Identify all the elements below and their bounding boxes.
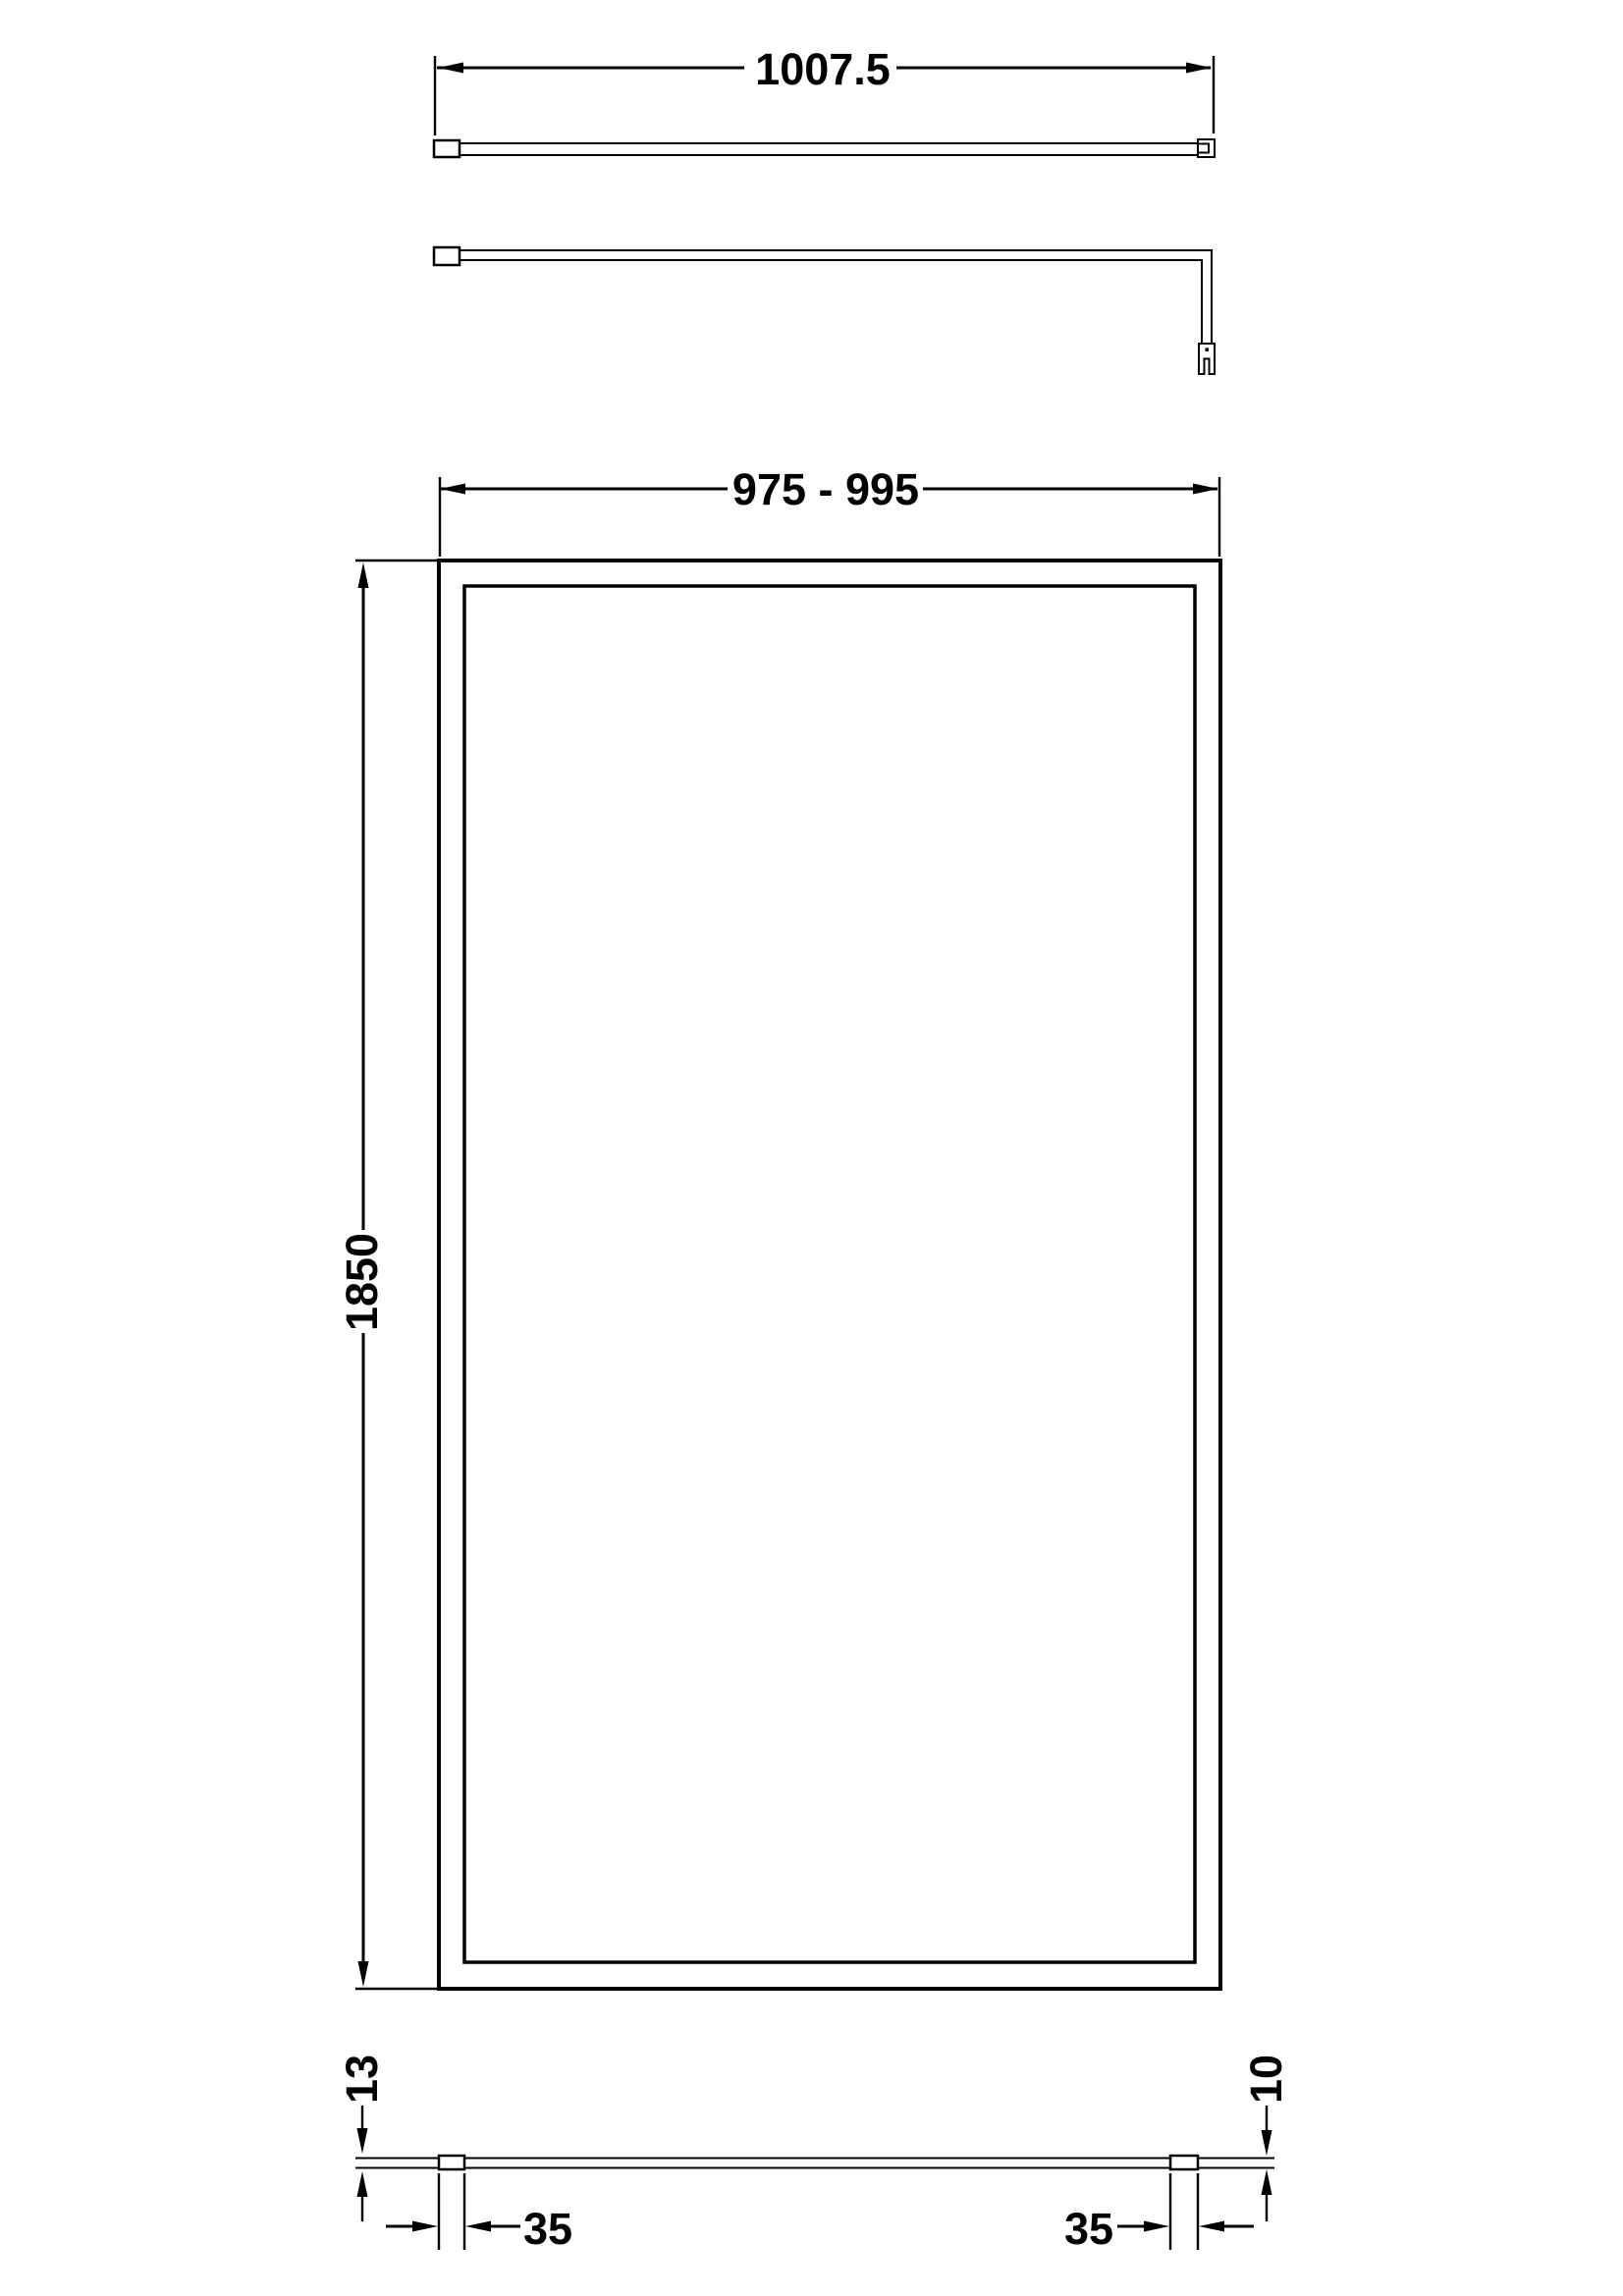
support-bar-side-view bbox=[434, 247, 1215, 374]
clamp-screw-dot bbox=[1206, 348, 1210, 352]
bar-glass-bracket-slot bbox=[1198, 144, 1209, 153]
bar-wall-end-cap bbox=[434, 140, 460, 157]
screen-width-label: 975 - 995 bbox=[732, 464, 919, 514]
screen-height-label: 1850 bbox=[337, 1233, 387, 1331]
arrow-down-icon bbox=[358, 1961, 369, 1987]
wall-profile-section bbox=[439, 2156, 464, 2169]
arrow-up-icon bbox=[1262, 2169, 1272, 2195]
dim-glass-thickness: 10 bbox=[1241, 2055, 1291, 2221]
support-bar-bottom-edge bbox=[460, 260, 1202, 344]
foot-profile-section bbox=[1170, 2156, 1198, 2169]
support-bar-plan-view bbox=[434, 139, 1215, 157]
screen-front-view bbox=[439, 561, 1220, 1989]
arrow-left-icon bbox=[465, 2221, 491, 2232]
dim-bar-length: 1007.5 bbox=[435, 44, 1214, 135]
foot-profile-width-label: 35 bbox=[1064, 2204, 1113, 2254]
wall-profile-width-label: 35 bbox=[523, 2204, 572, 2254]
arrow-down-icon bbox=[1262, 2130, 1272, 2156]
support-bar-body bbox=[460, 143, 1198, 155]
arrow-left-icon bbox=[1199, 2221, 1224, 2232]
support-bar-top-edge bbox=[460, 250, 1212, 344]
arrow-up-icon bbox=[357, 2171, 368, 2197]
dim-wall-profile-depth: 13 bbox=[337, 2055, 387, 2221]
glass-thickness-label: 10 bbox=[1241, 2055, 1291, 2104]
bar-length-label: 1007.5 bbox=[755, 44, 891, 94]
arrow-right-icon bbox=[1193, 484, 1218, 495]
dim-screen-height: 1850 bbox=[337, 561, 439, 1989]
arrow-right-icon bbox=[1186, 63, 1212, 74]
arrow-up-icon bbox=[358, 562, 369, 588]
arrow-left-icon bbox=[440, 484, 465, 495]
bottom-section-view bbox=[355, 2156, 1274, 2169]
screen-outer-frame bbox=[439, 561, 1220, 1989]
arrow-right-icon bbox=[1144, 2221, 1169, 2232]
dim-foot-profile-width: 35 bbox=[1064, 2173, 1254, 2254]
dim-screen-width: 975 - 995 bbox=[439, 464, 1219, 557]
technical-drawing: 1007.5 975 - 995 1850 bbox=[0, 0, 1623, 2296]
dim-wall-profile-width: 35 bbox=[386, 2173, 572, 2254]
arrow-right-icon bbox=[412, 2221, 438, 2232]
bar-wall-end-cap bbox=[434, 247, 460, 265]
arrow-down-icon bbox=[357, 2128, 368, 2154]
wall-profile-depth-label: 13 bbox=[337, 2055, 387, 2104]
arrow-left-icon bbox=[438, 63, 463, 74]
glass-clamp-bracket bbox=[1199, 344, 1215, 374]
